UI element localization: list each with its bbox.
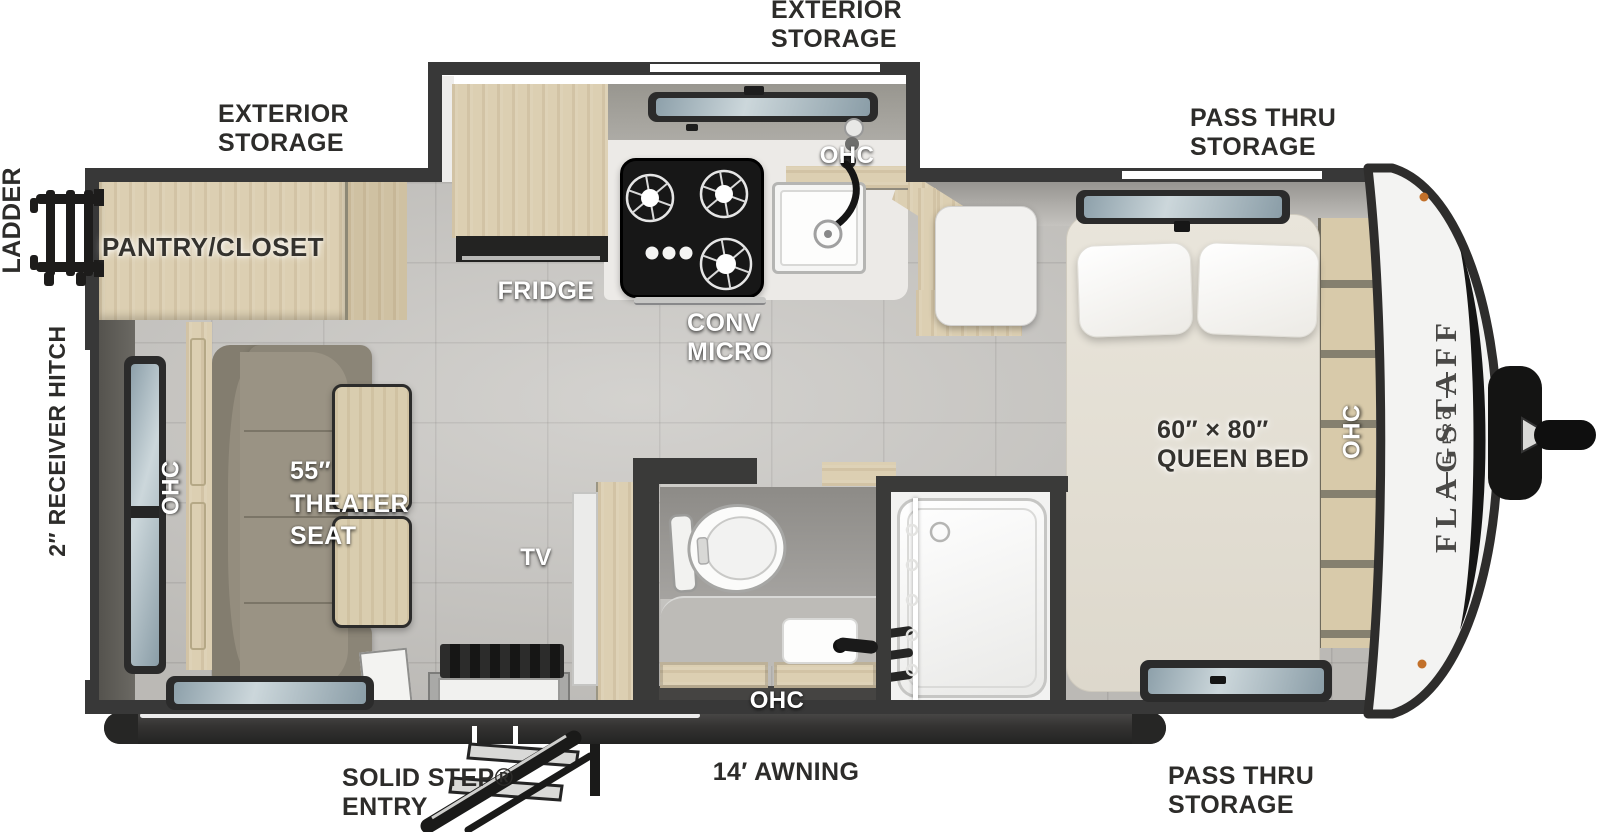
bed-foot-window-clip	[1210, 676, 1226, 684]
tongue-hitch	[1488, 366, 1596, 500]
rear-window-divider	[131, 506, 159, 518]
awning-bracket	[513, 726, 518, 744]
bed-foot-window-glass	[1148, 668, 1324, 694]
label-solid-step-entry: SOLID STEP® ENTRY	[242, 764, 442, 793]
oven-handle	[634, 297, 766, 305]
stove-cooktop	[620, 158, 764, 298]
bed-head-window-glass	[1084, 196, 1282, 218]
kitchen-window-handle	[686, 124, 698, 131]
rear-wall-exterior-strip	[85, 350, 90, 680]
label-exterior-storage-rear: EXTERIOR STORAGE	[118, 100, 318, 129]
awning-end-right	[1132, 712, 1166, 744]
label-pass-thru-top: PASS THRU STORAGE	[1090, 104, 1290, 133]
label-ohc-kitchen: OHC	[797, 142, 897, 169]
floorplan-canvas: EXTERIOR STORAGE EXTERIOR STORAGE PASS T…	[0, 0, 1600, 832]
bed-pillow-left	[1076, 242, 1193, 338]
label-pass-thru-bottom: PASS THRU STORAGE	[1068, 762, 1268, 791]
slide-wall-window-strip	[650, 64, 880, 72]
label-conv-micro: CONV MICRO	[617, 309, 757, 338]
fridge-counter	[452, 84, 608, 238]
wardrobe-dresser	[935, 206, 1037, 326]
bath-sink	[782, 618, 858, 664]
shower-wall-left	[876, 476, 891, 702]
label-theater-seat: 55″ THEATER SEAT	[220, 455, 360, 520]
bath-wall-left	[633, 458, 659, 702]
theater-ohc-door-top	[190, 338, 206, 486]
label-receiver-hitch: 2″ RECEIVER HITCH	[44, 293, 70, 589]
label-queen-bed: 60″ × 80″ QUEEN BED	[1077, 416, 1237, 445]
bath-drawer-right	[774, 662, 876, 688]
brand-logo: FLAGSTAFF E-PRO	[1413, 285, 1479, 585]
kitchen-sink-basin	[780, 190, 858, 266]
slide-wall-left	[428, 62, 442, 182]
label-tv: TV	[506, 544, 566, 571]
label-awning: 14′ AWNING	[686, 758, 886, 787]
fridge-handle	[462, 256, 600, 260]
brand-sub: E-PRO	[1440, 372, 1454, 498]
shower-wall-top	[876, 476, 1068, 492]
shower-curtain-rod	[913, 498, 918, 700]
label-ohc-theater: OHC	[157, 448, 184, 528]
marker-light-top	[1420, 193, 1429, 202]
theater-ohc-door-bottom	[190, 502, 206, 650]
slide-wall-right	[906, 62, 920, 182]
bed-pillow-right	[1196, 242, 1319, 338]
bath-back-wall	[660, 487, 878, 599]
seat-seam	[244, 602, 344, 604]
tv-cabinet-column	[596, 482, 638, 712]
bath-drawer-left	[660, 662, 768, 688]
wall-top-rear	[85, 168, 442, 182]
seat-seam	[244, 430, 344, 432]
shower-wall-right	[1050, 476, 1066, 702]
tv-panel	[572, 492, 598, 686]
marker-light-bottom	[1418, 660, 1427, 669]
awning-bracket	[472, 726, 477, 744]
kitchen-window-latch	[744, 86, 764, 95]
front-wall-window-strip	[1122, 171, 1322, 179]
bed-head-window-clip	[1174, 221, 1190, 232]
kitchen-window-glass	[656, 98, 870, 116]
label-ohc-bath: OHC	[737, 687, 817, 714]
awning-end-left	[104, 712, 138, 744]
label-exterior-storage-top: EXTERIOR STORAGE	[671, 0, 871, 25]
label-ohc-bed: OHC	[1338, 392, 1365, 472]
entry-furnace	[440, 644, 564, 678]
label-pantry-closet: PANTRY/CLOSET	[102, 233, 322, 263]
label-fridge: FRIDGE	[496, 277, 596, 306]
rear-bottom-window-glass	[174, 682, 366, 704]
label-ladder: LADDER	[0, 150, 26, 290]
shower-tub-inner	[907, 508, 1037, 688]
pantry-side-cabinet	[345, 180, 407, 320]
